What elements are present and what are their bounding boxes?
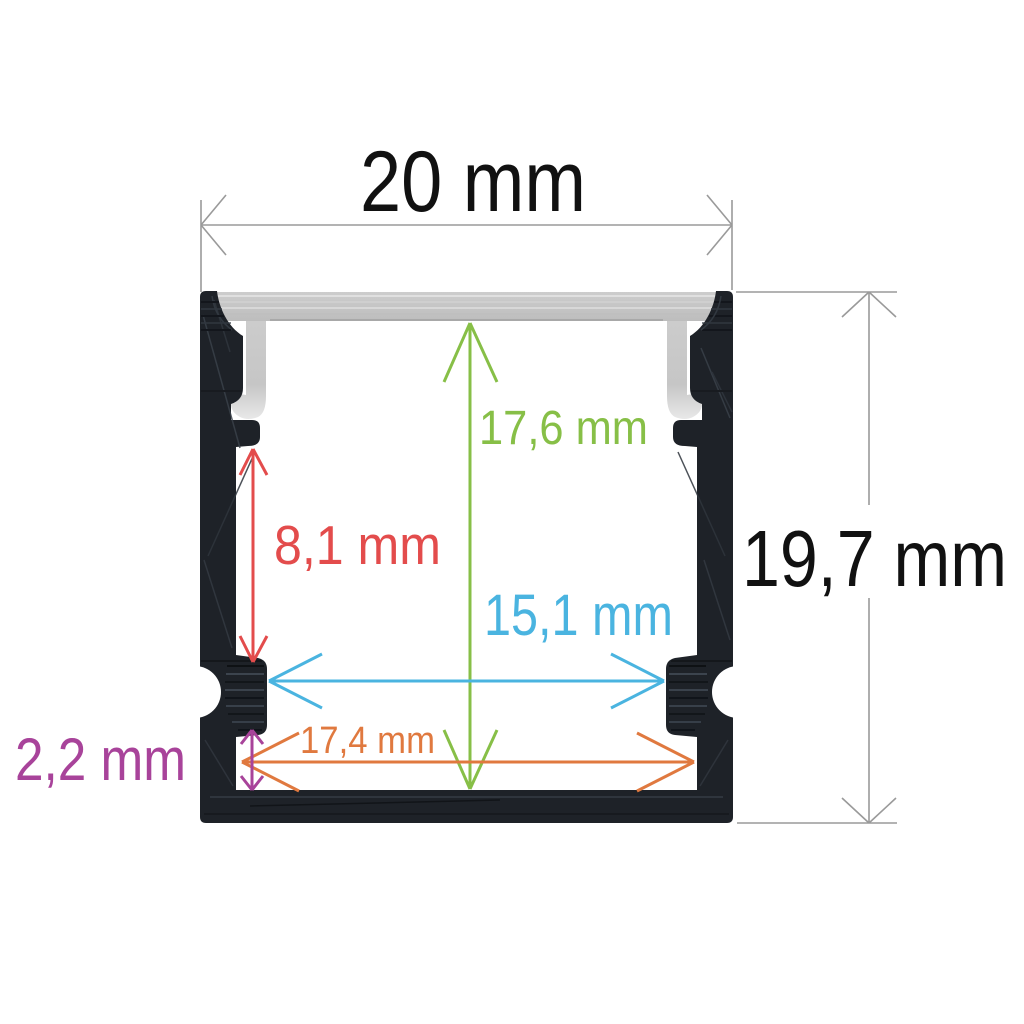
svg-text:8,1 mm: 8,1 mm [274,514,441,576]
svg-text:2,2 mm: 2,2 mm [15,726,186,793]
svg-text:17,4 mm: 17,4 mm [300,720,435,762]
svg-text:20 mm: 20 mm [360,134,586,230]
svg-text:17,6 mm: 17,6 mm [479,402,648,455]
svg-text:15,1 mm: 15,1 mm [484,583,673,648]
svg-text:19,7 mm: 19,7 mm [742,514,1007,603]
